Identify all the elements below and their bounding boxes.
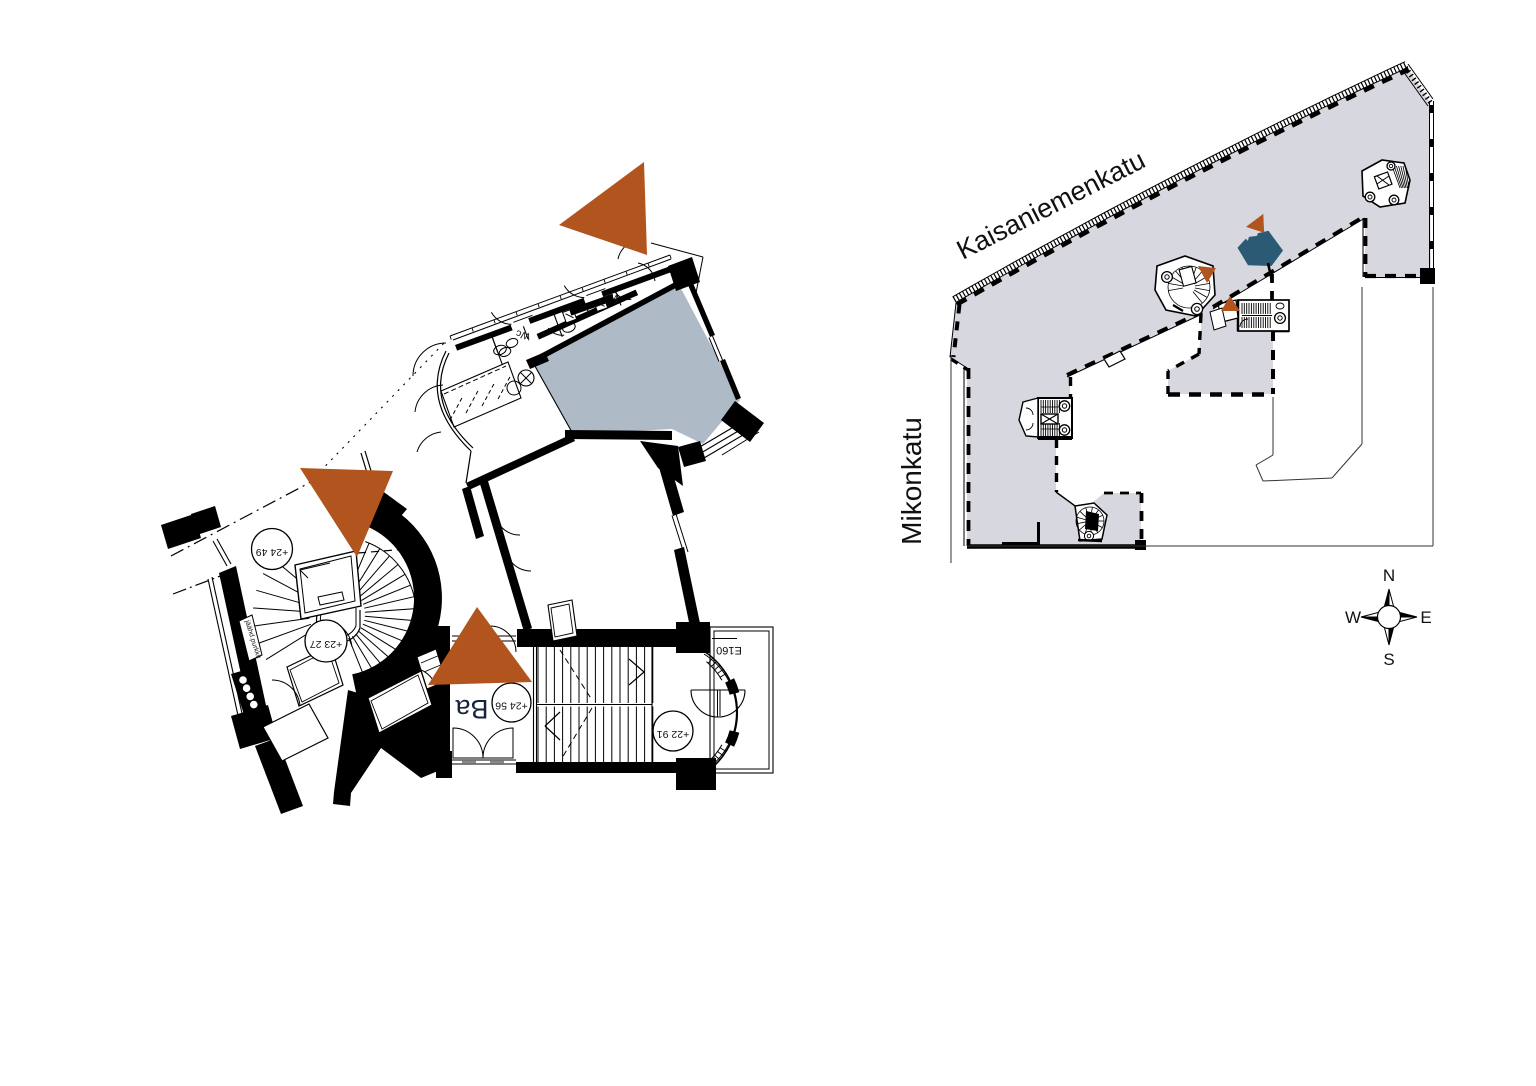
svg-text:E160: E160 <box>716 644 742 656</box>
svg-text:N: N <box>1383 566 1395 585</box>
svg-text:Ba: Ba <box>455 694 489 724</box>
svg-text:+24 56: +24 56 <box>495 700 528 712</box>
svg-text:+23 27: +23 27 <box>310 638 343 650</box>
svg-text:Mikonkatu: Mikonkatu <box>896 417 927 545</box>
svg-text:+24 49: +24 49 <box>256 546 289 558</box>
svg-text:E: E <box>1420 608 1431 627</box>
svg-text:S: S <box>1383 650 1394 669</box>
svg-text:W: W <box>1345 608 1361 627</box>
svg-text:+22 91: +22 91 <box>657 728 690 740</box>
